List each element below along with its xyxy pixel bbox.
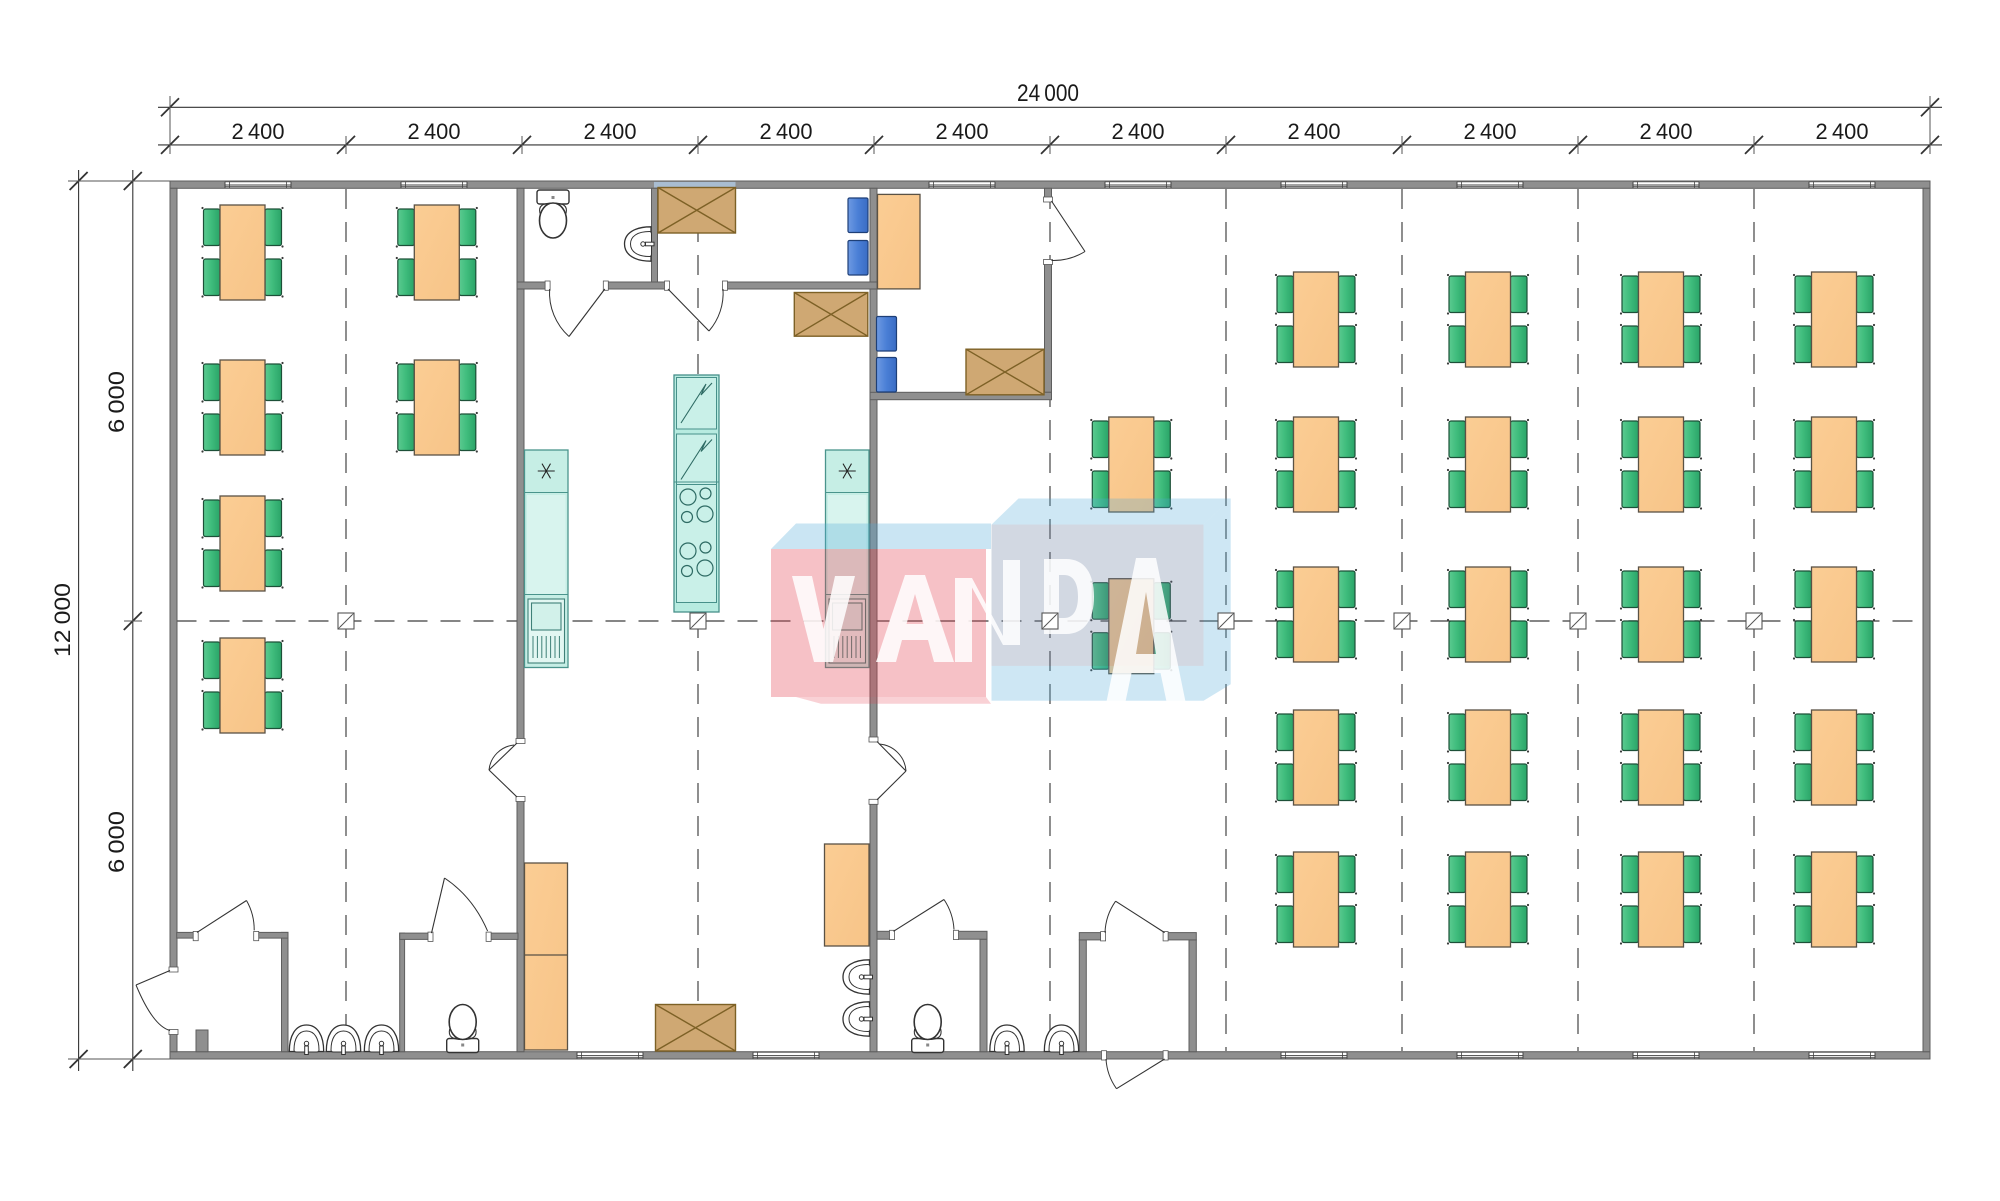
svg-text:2 400: 2 400 — [1816, 119, 1869, 144]
svg-text:2 400: 2 400 — [1464, 119, 1517, 144]
svg-text:2 400: 2 400 — [1640, 119, 1693, 144]
svg-text:12 000: 12 000 — [50, 583, 75, 657]
svg-text:2 400: 2 400 — [232, 119, 285, 144]
svg-text:6 000: 6 000 — [104, 811, 129, 873]
svg-text:24 000: 24 000 — [1017, 80, 1079, 107]
svg-text:2 400: 2 400 — [408, 119, 461, 144]
svg-text:2 400: 2 400 — [760, 119, 813, 144]
svg-text:2 400: 2 400 — [1288, 119, 1341, 144]
svg-text:6 000: 6 000 — [104, 371, 129, 433]
svg-text:2 400: 2 400 — [1112, 119, 1165, 144]
svg-text:2 400: 2 400 — [584, 119, 637, 144]
svg-text:2 400: 2 400 — [936, 119, 989, 144]
